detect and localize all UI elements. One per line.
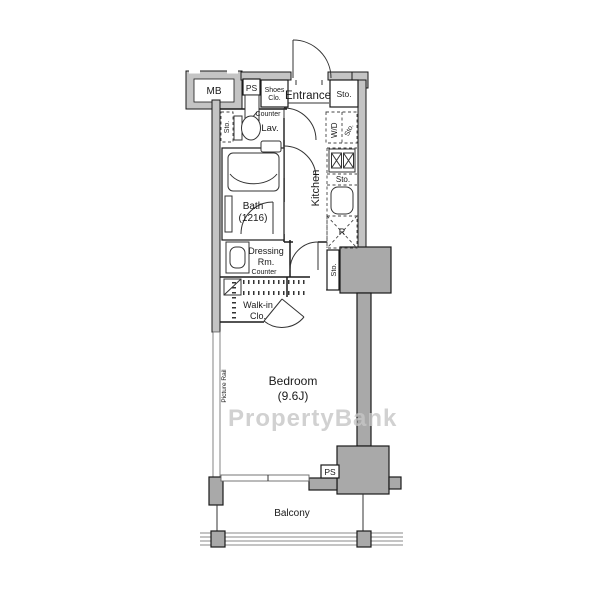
entrance-label: Entrance — [285, 90, 331, 102]
storage-entrance-label: Sto. — [336, 89, 351, 99]
bath-label: Bath — [243, 201, 264, 212]
kitchen-label: Kitchen — [310, 170, 322, 207]
hall-door-1 — [284, 108, 316, 140]
lav-counter-icon — [261, 141, 281, 152]
vanity-icon — [226, 242, 249, 273]
walkin-label-2: Clo. — [250, 311, 266, 321]
dressing-label-2: Rm. — [258, 257, 275, 267]
bath-size-label: (1216) — [239, 213, 268, 224]
storage-wd-label: Sto. — [344, 123, 356, 137]
toilet-icon — [234, 116, 261, 140]
storage-lav-label: Sto. — [224, 121, 231, 134]
storage-kitchen-upper-label: Sto. — [336, 175, 350, 184]
outer-walls — [186, 70, 401, 506]
dressing-label-1: Dressing — [248, 246, 284, 256]
pillar-bottom-left-bar — [309, 478, 337, 490]
railing-post-right — [357, 531, 371, 547]
stove-icon — [329, 149, 355, 172]
watermark-text: PropertyBank — [228, 405, 397, 432]
right-wall-upper — [358, 80, 366, 248]
balcony-area — [200, 494, 403, 547]
left-window-wall — [213, 332, 220, 478]
shoes-closet-label-1: Shoes — [265, 87, 285, 94]
walkin-label-1: Walk-in — [243, 300, 273, 310]
bedroom-size-label: (9.6J) — [278, 389, 309, 403]
fridge-label: R — [339, 227, 346, 237]
wall-notch — [189, 70, 200, 74]
floorplan-svg: PropertyBank MB PS Shoes Clo. Entrance S… — [0, 0, 600, 600]
bathtub-icon — [228, 153, 279, 191]
ps-top-label: PS — [246, 83, 258, 93]
floorplan: PropertyBank MB PS Shoes Clo. Entrance S… — [0, 0, 600, 600]
balcony-window — [221, 475, 309, 481]
wd-label: W/D — [330, 122, 339, 138]
counter-entry-label: Counter — [256, 111, 282, 118]
pillar-mid — [340, 247, 391, 293]
pillar-bottom — [337, 446, 389, 494]
wall-notch — [227, 70, 238, 74]
lavatory-label: Lav. — [261, 123, 278, 134]
mb-label: MB — [207, 86, 222, 97]
ps-bottom-label: PS — [324, 467, 336, 477]
entrance-door — [293, 40, 331, 78]
sink-icon — [331, 187, 353, 214]
bath-ledge — [225, 196, 232, 232]
left-wall — [212, 100, 220, 332]
storage-kitchen-lower-label: Sto. — [329, 263, 338, 276]
railing-post-left — [211, 531, 225, 547]
shoes-closet-label-2: Clo. — [268, 95, 281, 102]
balcony-label: Balcony — [274, 508, 310, 519]
bedroom-door — [290, 242, 318, 270]
counter-dressing-label: Counter — [252, 269, 278, 276]
picture-rail-label: Picture Rail — [221, 369, 228, 403]
bedroom-label: Bedroom — [269, 374, 318, 388]
pillar-bottom-right-nub — [389, 477, 401, 489]
